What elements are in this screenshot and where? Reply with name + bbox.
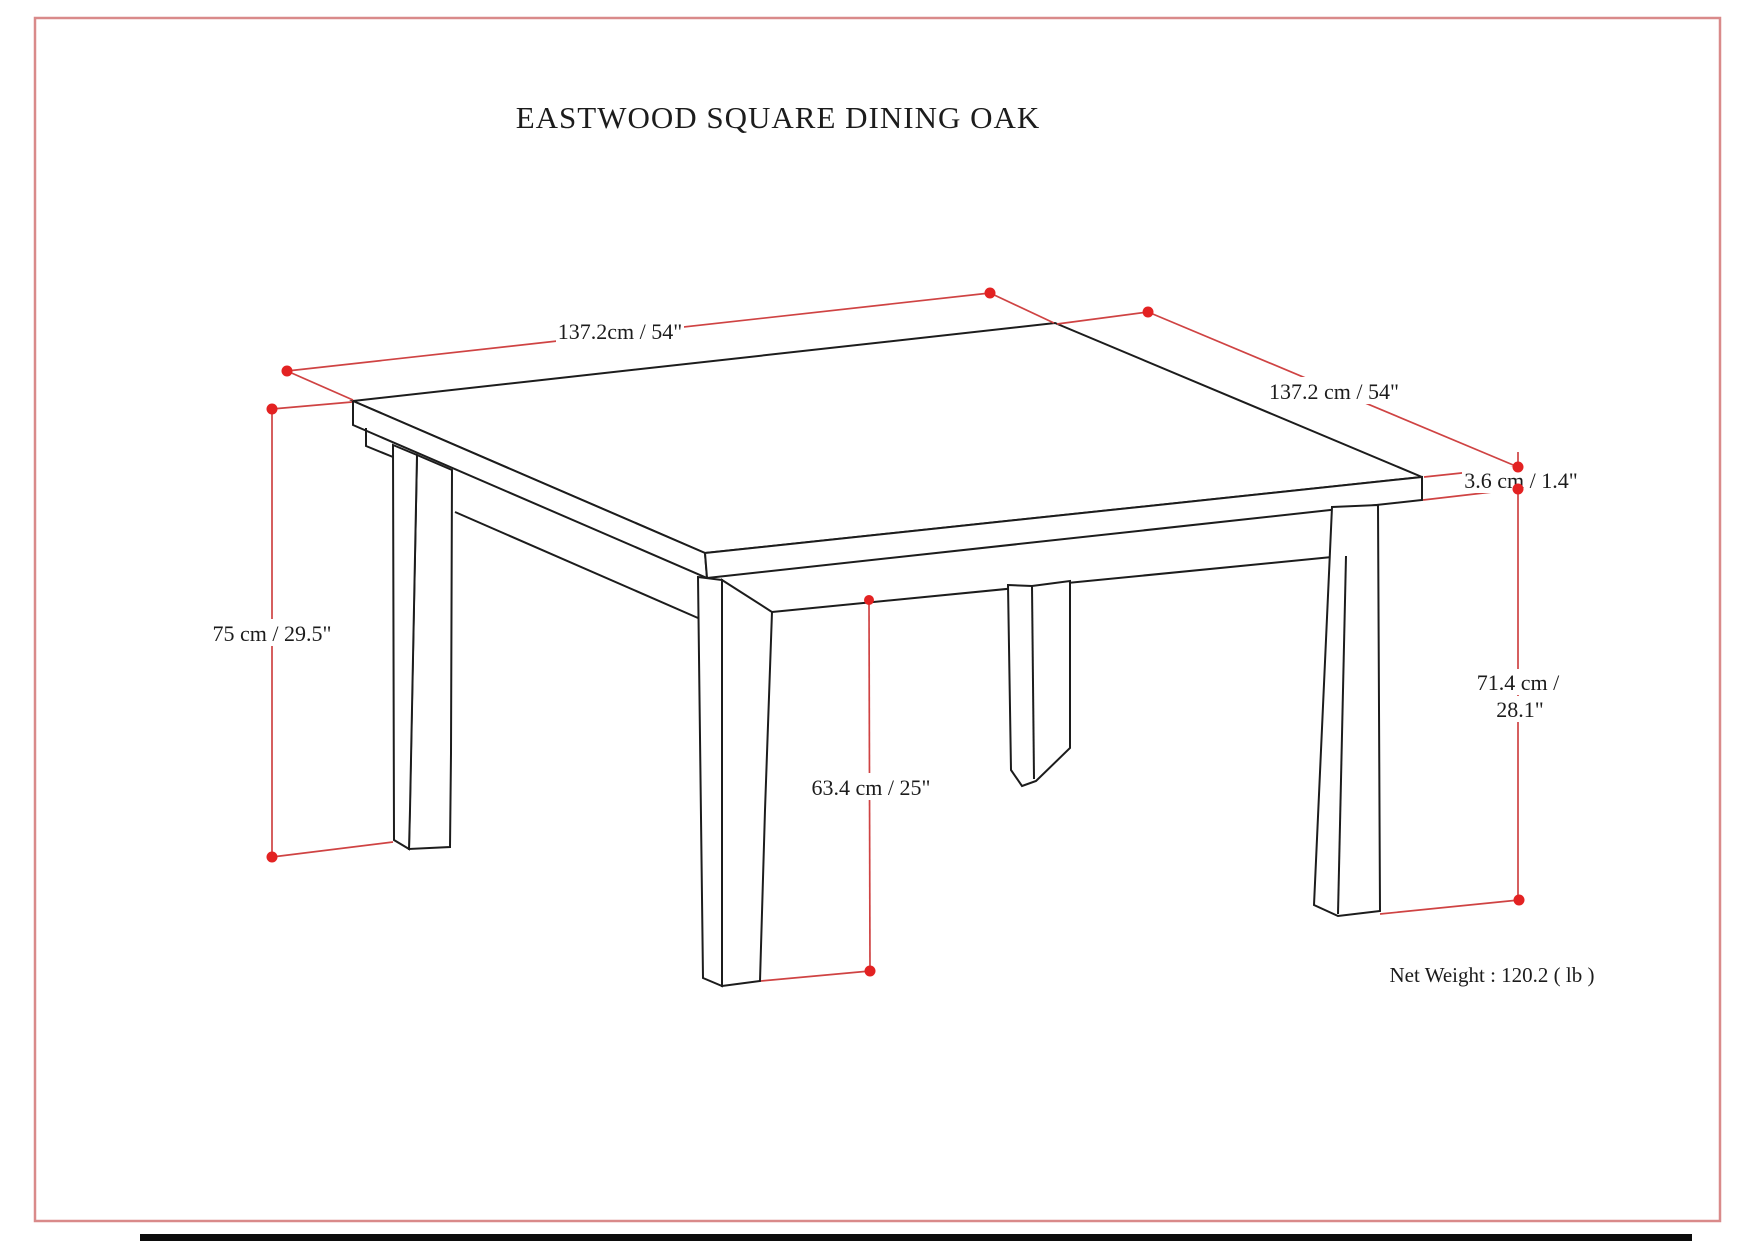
net-weight-label: Net Weight : 120.2 ( lb ) xyxy=(1390,963,1595,987)
floor-to-apron-label: 63.4 cm / 25" xyxy=(812,775,931,800)
diagram-title: EASTWOOD SQUARE DINING OAK xyxy=(516,100,1041,135)
dot-leg-height-bottom xyxy=(1514,895,1525,906)
leg-left xyxy=(393,445,452,849)
dot-apron-bottom xyxy=(865,966,876,977)
dot-height-top xyxy=(267,404,278,415)
dot-apron-top xyxy=(864,595,874,605)
dot-depth-top xyxy=(1143,307,1154,318)
bottom-black-bar xyxy=(140,1234,1692,1241)
leg-front xyxy=(698,577,772,986)
dot-height-bottom xyxy=(267,852,278,863)
dot-depth-bottom xyxy=(1513,462,1524,473)
top-depth-label: 137.2 cm / 54" xyxy=(1269,379,1399,404)
diagram-page: EASTWOOD SQUARE DINING OAK 137.2cm / 54"… xyxy=(0,0,1755,1241)
product-dimension-diagram: EASTWOOD SQUARE DINING OAK 137.2cm / 54"… xyxy=(0,0,1755,1241)
leg-height-label-line1: 71.4 cm / xyxy=(1477,670,1560,695)
top-width-label: 137.2cm / 54" xyxy=(558,319,682,344)
leg-height-label-line2: 28.1" xyxy=(1496,697,1543,722)
dot-width-left xyxy=(282,366,293,377)
dot-thickness-bottom xyxy=(1513,484,1524,495)
dot-width-right xyxy=(985,288,996,299)
leg-right xyxy=(1314,505,1380,916)
overall-height-label: 75 cm / 29.5" xyxy=(213,621,332,646)
table-drawing xyxy=(353,323,1422,986)
tabletop-top-surface xyxy=(353,323,1422,553)
leg-back xyxy=(1008,581,1070,786)
